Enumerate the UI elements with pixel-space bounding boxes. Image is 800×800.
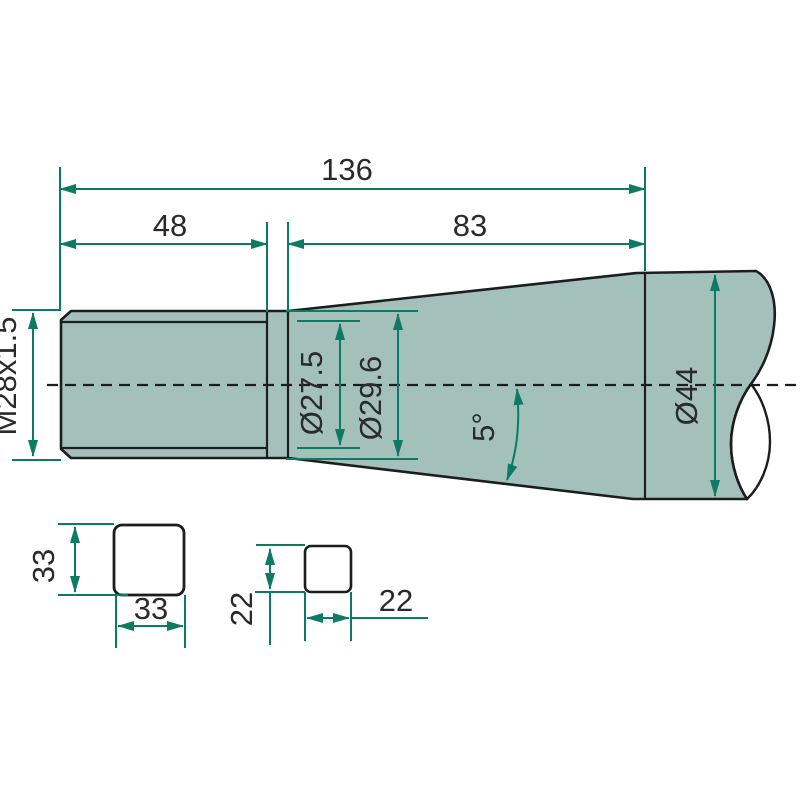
drawing-canvas: 136 48 83 M28x1.5 Ø27.5 Ø29.6 5°	[0, 0, 800, 800]
dim-label-cone-length: 83	[453, 208, 487, 243]
square-section-large: 33 33	[26, 524, 185, 648]
dim-thread-length: 48	[60, 208, 267, 312]
dim-label-square-small-height: 22	[224, 592, 259, 626]
dim-label-root-diameter: Ø27.5	[294, 351, 329, 435]
dim-label-square-small-width: 22	[379, 583, 413, 618]
dim-label-thread-length: 48	[153, 208, 187, 243]
square-small	[305, 546, 351, 592]
dim-label-neck-diameter: Ø29.6	[353, 356, 388, 440]
dim-label-max-diameter: Ø44	[669, 367, 704, 426]
dim-label-thread-spec: M28x1.5	[0, 317, 23, 436]
dim-label-square-large-height: 33	[26, 549, 61, 583]
dim-label-square-large-width: 33	[134, 591, 168, 626]
dim-label-total-length: 136	[321, 152, 373, 187]
technical-drawing: 136 48 83 M28x1.5 Ø27.5 Ø29.6 5°	[0, 0, 800, 800]
square-section-small: 22 22	[224, 545, 428, 645]
dim-label-cone-angle: 5°	[466, 412, 501, 442]
square-large	[114, 525, 184, 595]
